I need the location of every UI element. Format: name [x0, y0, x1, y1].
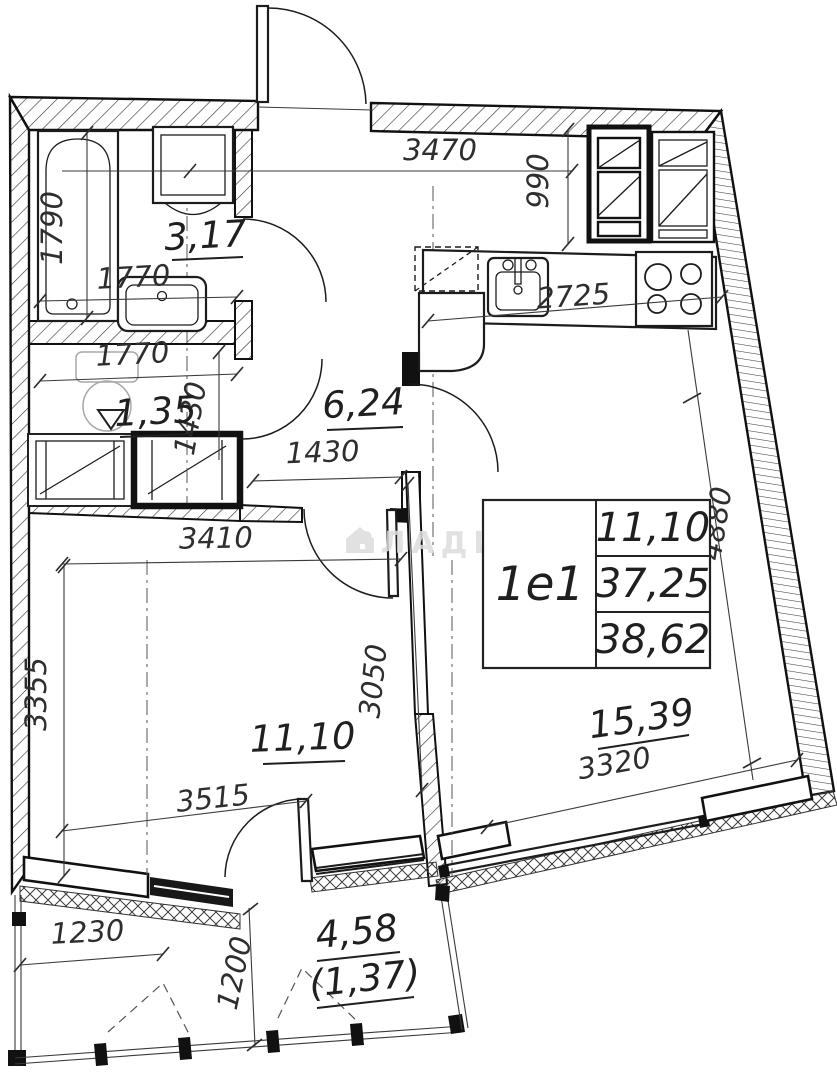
dimension-3355: 3355: [19, 657, 53, 731]
dimension-2725: 2725: [535, 276, 611, 315]
room-label-balcony: 4,58: [313, 906, 399, 957]
dimension-3470: 3470: [403, 133, 477, 167]
info-total-area: 38,62: [596, 617, 711, 663]
floorplan-svg: 3470 990 2725 1790 1770 1770 1430 1430 3…: [0, 0, 837, 1080]
dimension-1770-bath: 1770: [96, 258, 171, 296]
top-wall-left: [10, 97, 258, 130]
kitchen-cabinet: [419, 293, 484, 371]
bathroom-east-wall-upper: [235, 130, 252, 217]
entrance-door-leaf: [257, 6, 268, 102]
dimension-1790: 1790: [35, 191, 69, 265]
dimension-1430-hall: 1430: [285, 434, 360, 471]
bathroom-east-wall-lower: [235, 301, 252, 359]
info-living-area: 11,10: [596, 505, 711, 551]
washing-machine: [153, 127, 233, 203]
dimension-3410: 3410: [179, 520, 253, 555]
unit-info-table: 1е1 11,10 37,25 38,62: [483, 500, 710, 668]
vent-shafts: [28, 434, 240, 506]
dimension-1770-wc: 1770: [95, 335, 170, 373]
room-label-hallway: 6,24: [321, 380, 406, 427]
unit-code: 1е1: [496, 557, 585, 612]
kitchen-west-stub: [402, 352, 420, 386]
dimension-1230: 1230: [50, 913, 125, 951]
dimension-990: 990: [521, 153, 555, 208]
stove: [636, 252, 712, 326]
room-label-bedroom: 11,10: [249, 714, 356, 761]
room-label-bathroom: 3,17: [163, 212, 248, 259]
info-apartment-area: 37,25: [596, 561, 711, 607]
floor-plan-page: 3470 990 2725 1790 1770 1770 1430 1430 3…: [0, 0, 837, 1080]
left-wall: [10, 97, 29, 892]
room-label-wc: 1,35: [113, 388, 198, 435]
